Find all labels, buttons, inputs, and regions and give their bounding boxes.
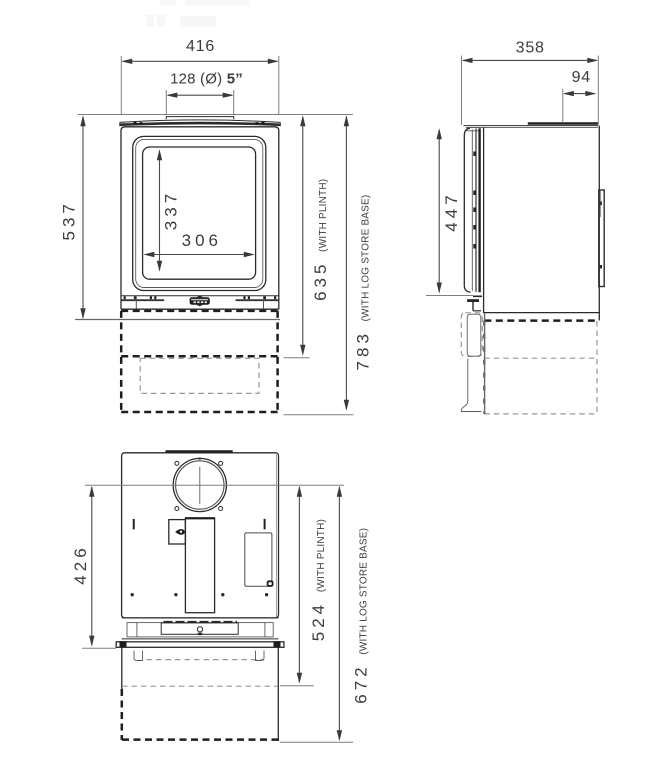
svg-text:524 (WITH PLINTH): 524 (WITH PLINTH) — [309, 519, 328, 641]
svg-text:306: 306 — [182, 231, 222, 250]
svg-text:672 (WITH LOG STORE BASE): 672 (WITH LOG STORE BASE) — [352, 528, 371, 704]
svg-text:416: 416 — [186, 38, 215, 55]
svg-text:447: 447 — [442, 191, 461, 231]
svg-text:94: 94 — [572, 69, 591, 86]
svg-text:337: 337 — [162, 190, 181, 230]
svg-text:426: 426 — [71, 544, 90, 584]
svg-text:358: 358 — [516, 39, 545, 56]
svg-text:783 (WITH LOG STORE BASE): 783 (WITH LOG STORE BASE) — [354, 195, 373, 371]
svg-text:128 (Ø) 5”: 128 (Ø) 5” — [170, 71, 243, 88]
svg-text:635 (WITH PLINTH): 635 (WITH PLINTH) — [311, 179, 330, 301]
svg-text:537: 537 — [59, 200, 78, 240]
